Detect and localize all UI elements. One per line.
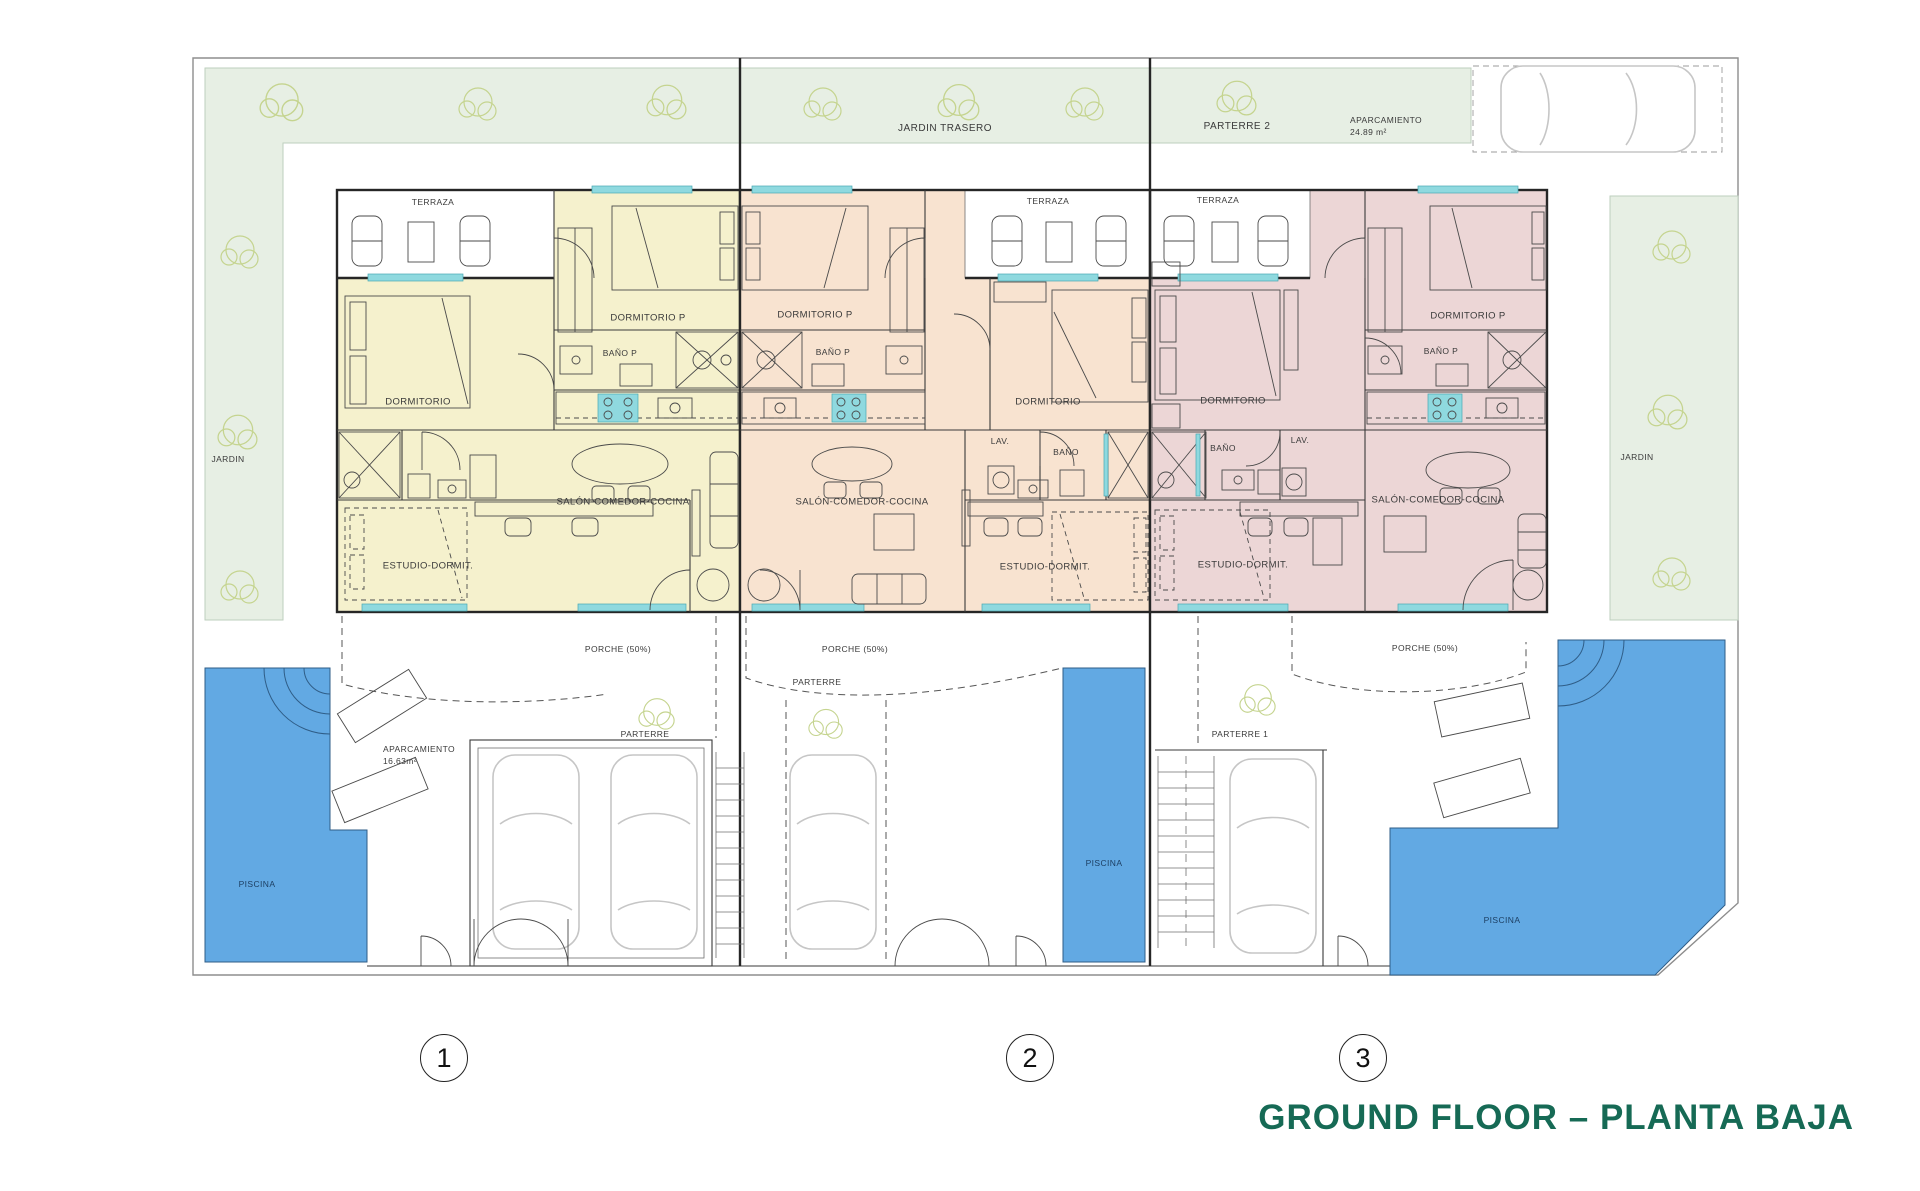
page-title: GROUND FLOOR – PLANTA BAJA bbox=[1258, 1098, 1854, 1138]
unit-1-number-badge: 1 bbox=[420, 1034, 468, 1082]
unit3-terraza-label: TERRAZA bbox=[1197, 195, 1239, 205]
unit1-bano-p-label: BAÑO P bbox=[603, 348, 638, 358]
unit1-porche-label: PORCHE (50%) bbox=[585, 644, 651, 654]
jardin-right-label: JARDIN bbox=[1620, 452, 1653, 462]
aparcamiento-front-label: APARCAMIENTO bbox=[383, 744, 455, 754]
jardin-trasero-label: JARDIN TRASERO bbox=[898, 123, 992, 135]
floor-plan-canvas: JARDIN TRASERO PARTERRE 2 APARCAMIENTO 2… bbox=[0, 0, 1920, 1191]
top-parking-space bbox=[1473, 66, 1722, 152]
entrance-gates bbox=[421, 919, 1368, 966]
unit2-dormitorio-p-label: DORMITORIO P bbox=[777, 309, 852, 320]
unit3-dormitorio-label: DORMITORIO bbox=[1200, 395, 1266, 406]
piscina-3-label: PISCINA bbox=[1484, 915, 1521, 925]
unit2-estudio-label: ESTUDIO-DORMIT. bbox=[1000, 561, 1090, 572]
unit2-lav-label: LAV. bbox=[991, 436, 1010, 446]
unit2-porche-label: PORCHE (50%) bbox=[822, 644, 888, 654]
jardin-left-label: JARDIN bbox=[211, 454, 244, 464]
unit-3-number-badge: 3 bbox=[1339, 1034, 1387, 1082]
unit3-salon-label: SALÓN-COMEDOR-COCINA bbox=[1371, 494, 1504, 505]
porch-outlines bbox=[342, 616, 1526, 962]
parterre-unit1-label: PARTERRE bbox=[621, 729, 670, 739]
unit2-dormitorio-label: DORMITORIO bbox=[1015, 396, 1081, 407]
aparcamiento-top-label: APARCAMIENTO bbox=[1350, 115, 1422, 125]
unit1-estudio-label: ESTUDIO-DORMIT. bbox=[383, 560, 473, 571]
piscina-1-label: PISCINA bbox=[239, 879, 276, 889]
sun-loungers bbox=[332, 669, 1530, 822]
unit2-salon-label: SALÓN-COMEDOR-COCINA bbox=[795, 496, 928, 507]
unit3-bano-p-label: BAÑO P bbox=[1424, 346, 1459, 356]
unit3-bano-label: BAÑO bbox=[1210, 443, 1236, 453]
unit2-bano-label: BAÑO bbox=[1053, 447, 1079, 457]
unit3-dormitorio-p-label: DORMITORIO P bbox=[1430, 310, 1505, 321]
unit3-porche-label: PORCHE (50%) bbox=[1392, 643, 1458, 653]
unit2-terraza-label: TERRAZA bbox=[1027, 196, 1069, 206]
parterre-2-label: PARTERRE 2 bbox=[1204, 121, 1271, 133]
piscina-2-label: PISCINA bbox=[1086, 858, 1123, 868]
aparcamiento-top-area: 24.89 m² bbox=[1350, 127, 1387, 137]
unit3-estudio-label: ESTUDIO-DORMIT. bbox=[1198, 559, 1288, 570]
unit1-dormitorio-label: DORMITORIO bbox=[385, 396, 451, 407]
parterre-1-label: PARTERRE 1 bbox=[1212, 729, 1269, 739]
unit1-salon-label: SALÓN-COMEDOR-COCINA bbox=[556, 496, 689, 507]
floor-plan-drawing bbox=[0, 0, 1920, 1191]
aparcamiento-front-area: 16.63m² bbox=[383, 756, 417, 766]
unit1-dormitorio-p-label: DORMITORIO P bbox=[610, 312, 685, 323]
unit-2-plan bbox=[740, 186, 1150, 612]
unit2-bano-p-label: BAÑO P bbox=[816, 347, 851, 357]
unit1-terraza-label: TERRAZA bbox=[412, 197, 454, 207]
unit-2-number-badge: 2 bbox=[1006, 1034, 1054, 1082]
unit3-lav-label: LAV. bbox=[1291, 435, 1310, 445]
parterre-unit2-label: PARTERRE bbox=[793, 677, 842, 687]
